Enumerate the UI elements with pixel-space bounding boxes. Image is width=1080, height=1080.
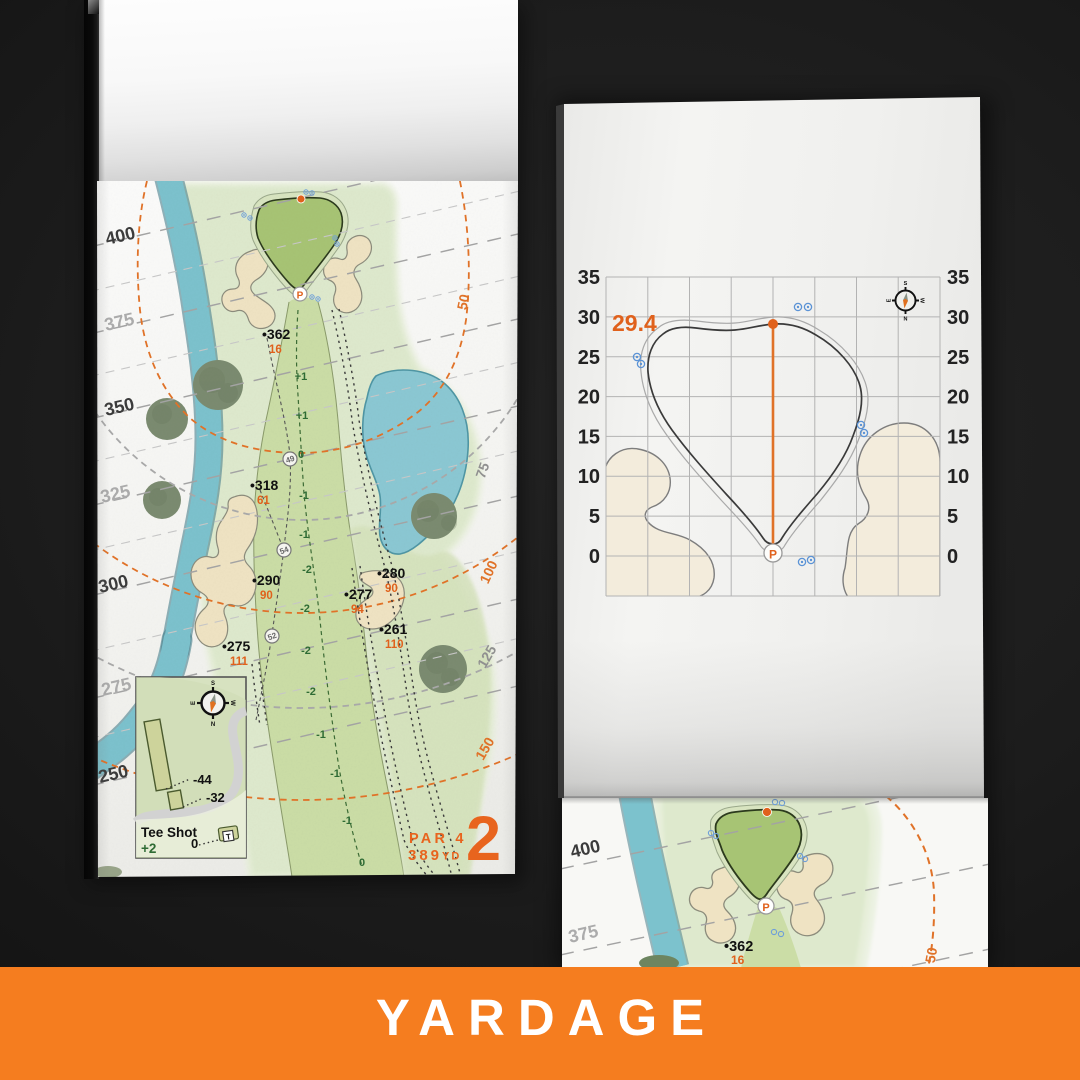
svg-text:35: 35 — [578, 267, 600, 289]
svg-text:15: 15 — [947, 427, 969, 449]
svg-text:P: P — [762, 902, 769, 914]
svg-text:16: 16 — [731, 953, 745, 967]
svg-text:30: 30 — [947, 307, 969, 329]
svg-text:E: E — [887, 298, 893, 302]
svg-text:0: 0 — [589, 546, 600, 568]
svg-text:N: N — [904, 317, 908, 323]
svg-text:0: 0 — [947, 546, 958, 568]
svg-text:5: 5 — [947, 506, 958, 528]
svg-text:15: 15 — [578, 427, 600, 449]
svg-text:W: W — [919, 298, 925, 304]
svg-text:25: 25 — [947, 347, 969, 369]
svg-text:S: S — [904, 281, 908, 287]
svg-text:35: 35 — [947, 267, 969, 289]
svg-text:10: 10 — [947, 466, 969, 488]
svg-text:P: P — [769, 548, 777, 562]
svg-text:25: 25 — [578, 347, 600, 369]
svg-text:389YD: 389YD — [408, 847, 461, 864]
svg-text:29.4: 29.4 — [612, 310, 657, 336]
svg-text:10: 10 — [578, 466, 600, 488]
svg-text:50: 50 — [922, 946, 940, 964]
svg-text:5: 5 — [589, 506, 600, 528]
svg-text:PAR 4: PAR 4 — [409, 831, 467, 847]
svg-text:20: 20 — [578, 387, 600, 409]
svg-text:30: 30 — [578, 307, 600, 329]
svg-text:20: 20 — [947, 387, 969, 409]
svg-text:2: 2 — [466, 804, 501, 874]
